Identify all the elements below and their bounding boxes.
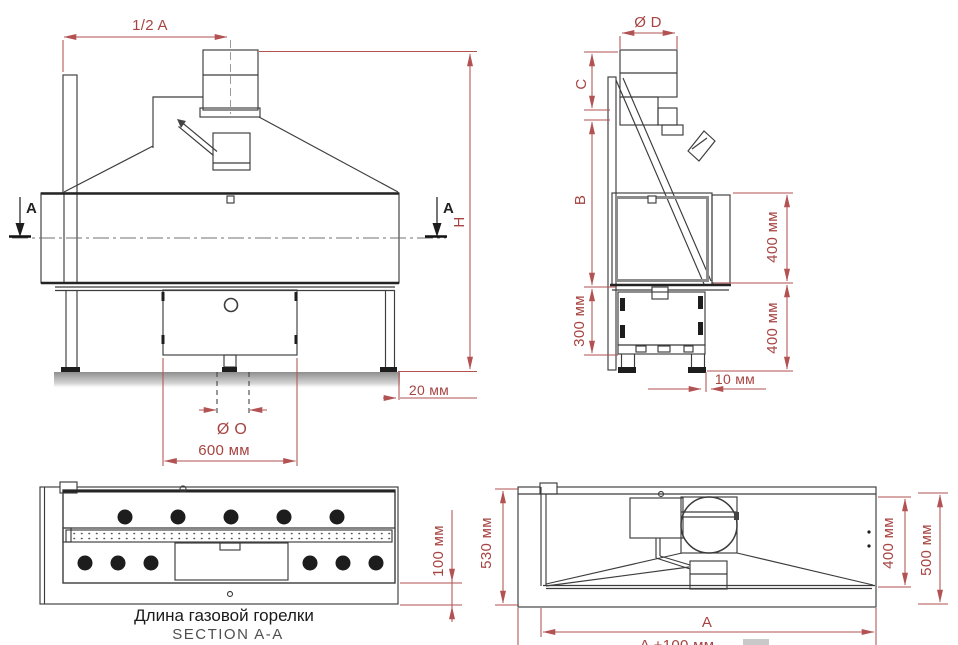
dim-label-a-plus-100: A +100 мм xyxy=(640,637,715,645)
technical-drawing-canvas: A A 1/2 A H 20 мм Ø O 600 м xyxy=(0,0,958,645)
dim-label-c: C xyxy=(573,78,590,89)
dim-label-300mm: 300 мм xyxy=(571,295,588,347)
strut-arrow xyxy=(177,119,186,128)
front-chimney xyxy=(200,40,260,117)
side-dimensions: Ø D C B 300 мм 400 мм 400 мм 10 xyxy=(571,14,793,392)
dim-label-400mm-plan: 400 мм xyxy=(880,517,897,569)
front-view: A A 1/2 A H 20 мм Ø O 600 м xyxy=(9,17,477,466)
front-hood xyxy=(64,97,398,192)
dim-label-10mm: 10 мм xyxy=(715,371,755,387)
dim-label-h: H xyxy=(451,216,468,227)
dim-label-20mm: 20 мм xyxy=(409,382,449,398)
dim-label-530mm: 530 мм xyxy=(478,517,495,569)
ground-shading xyxy=(54,372,400,389)
side-hood-diagonal xyxy=(616,78,715,284)
front-body xyxy=(41,193,399,291)
side-stand xyxy=(610,285,731,373)
caption-section-aa: SECTION A-A xyxy=(172,626,284,643)
front-burner-box xyxy=(162,290,298,372)
section-view: 100 мм Длина газовой горелки SECTION A-A xyxy=(40,482,462,643)
plan-outlet-box xyxy=(690,561,727,589)
side-tilted-box xyxy=(688,131,715,161)
dim-label-b: B xyxy=(572,195,589,205)
dim-label-half-a: 1/2 A xyxy=(132,17,168,34)
plan-view: 530 мм 400 мм 500 мм A A +100 мм xyxy=(478,483,948,645)
section-label-left: A xyxy=(26,200,37,217)
section-label-right: A xyxy=(443,200,454,217)
plan-fan-unit xyxy=(681,497,739,553)
dim-label-600mm: 600 мм xyxy=(198,442,250,459)
dim-label-dia-d: Ø D xyxy=(634,14,662,31)
dim-label-a: A xyxy=(702,614,712,631)
section-cut-marker-left: A xyxy=(9,197,37,237)
section-dimensions: 100 мм xyxy=(400,510,462,622)
burner-control-box xyxy=(175,543,288,580)
side-view: Ø D C B 300 мм 400 мм 400 мм 10 xyxy=(571,14,793,392)
fireplace-drawing: A A 1/2 A H 20 мм Ø O 600 м xyxy=(0,0,958,645)
burner-bar xyxy=(63,486,395,597)
front-wall-strip xyxy=(63,75,77,283)
watermark-fragment xyxy=(743,639,769,645)
section-outline xyxy=(40,487,398,604)
dim-label-400mm-upper: 400 мм xyxy=(764,211,781,263)
dim-label-500mm: 500 мм xyxy=(918,524,935,576)
front-legs xyxy=(61,290,397,373)
plan-control-box xyxy=(630,498,683,538)
front-dimensions: 1/2 A H 20 мм Ø O 600 мм xyxy=(63,17,477,466)
dim-label-400mm-lower: 400 мм xyxy=(764,302,781,354)
plan-corner-tab xyxy=(540,483,557,494)
dim-label-100mm: 100 мм xyxy=(430,525,447,577)
dim-label-dia-o: Ø O xyxy=(217,421,247,438)
hood-access-box xyxy=(213,133,250,170)
plan-hood-edges xyxy=(543,553,875,589)
caption-burner-length: Длина газовой горелки xyxy=(134,606,314,625)
section-cut-marker-right: A xyxy=(425,197,454,237)
